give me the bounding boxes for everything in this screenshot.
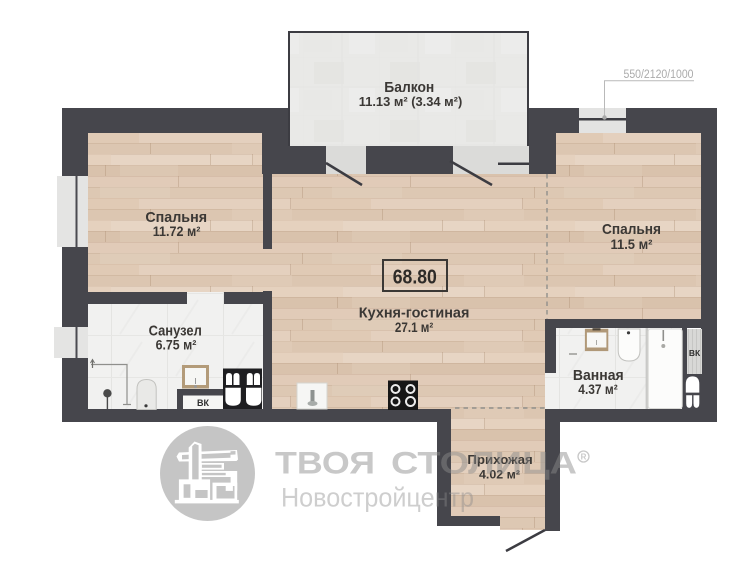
svg-text:6.75 м²: 6.75 м² — [156, 338, 197, 353]
svg-text:ВК: ВК — [197, 398, 209, 408]
svg-text:550/2120/1000: 550/2120/1000 — [624, 69, 694, 81]
svg-text:Спальня: Спальня — [602, 221, 661, 238]
svg-text:11.13 м² (3.34 м²): 11.13 м² (3.34 м²) — [359, 94, 463, 109]
svg-text:Кухня-гостиная: Кухня-гостиная — [359, 305, 470, 322]
svg-text:11.5 м²: 11.5 м² — [611, 237, 653, 252]
svg-text:ВК: ВК — [689, 348, 701, 358]
svg-text:ТВОЯ: ТВОЯ — [275, 445, 375, 481]
svg-text:11.72 м²: 11.72 м² — [153, 224, 201, 239]
svg-text:Новостройцентр: Новостройцентр — [281, 483, 474, 513]
svg-text:R: R — [581, 453, 587, 462]
svg-text:27.1 м²: 27.1 м² — [395, 320, 434, 335]
svg-text:68.80: 68.80 — [393, 267, 437, 289]
svg-text:СТОЛИЦА: СТОЛИЦА — [391, 445, 577, 481]
svg-text:4.37 м²: 4.37 м² — [578, 382, 618, 397]
